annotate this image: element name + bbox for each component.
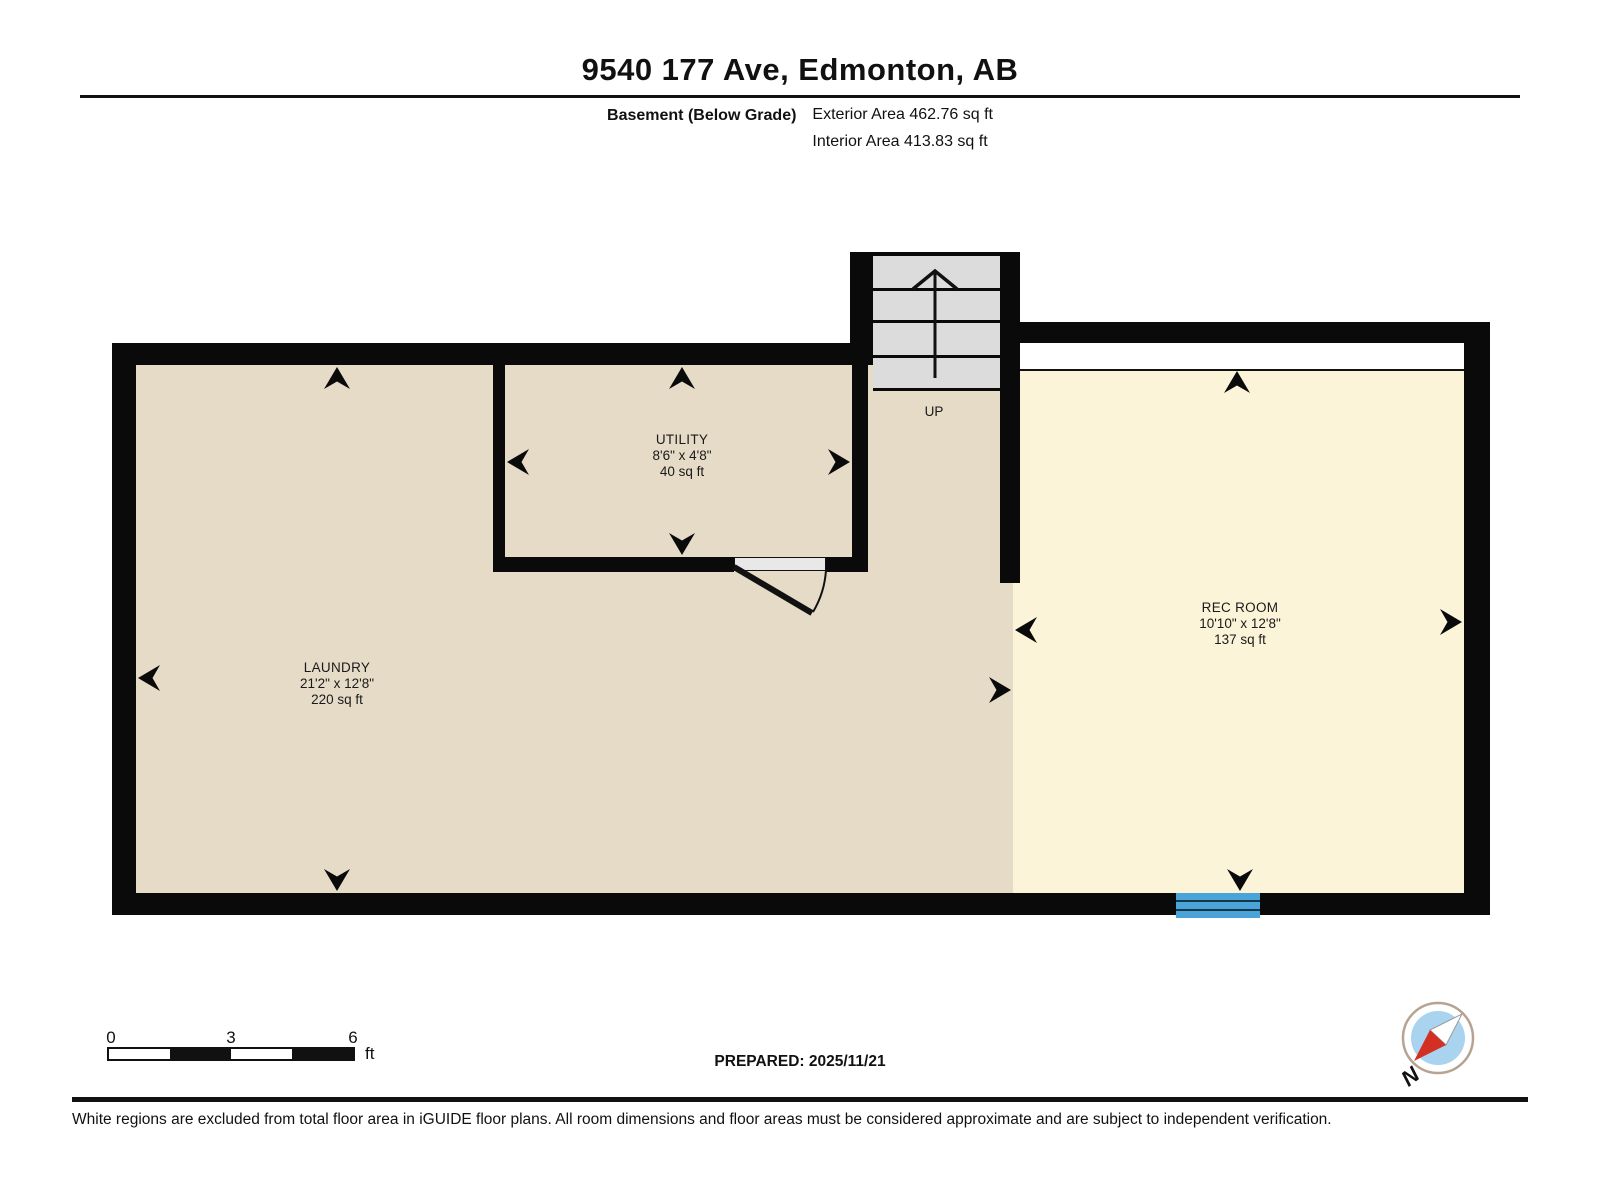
- room-name: LAUNDRY: [300, 660, 374, 676]
- room-area: 40 sq ft: [652, 464, 711, 480]
- area-summary: Exterior Area 462.76 sq ft Interior Area…: [812, 106, 993, 151]
- door-swing-icon: [700, 550, 860, 660]
- wall-top-rec-section: [1002, 322, 1490, 343]
- room-dimensions: 8'6" x 4'8": [652, 448, 711, 464]
- wall-stair-left: [850, 252, 873, 365]
- window-pane-line: [1176, 900, 1260, 902]
- compass-icon: N: [1392, 998, 1502, 1098]
- floor-name: Basement (Below Grade): [607, 106, 796, 125]
- wall-right: [1464, 322, 1490, 915]
- room-name: UTILITY: [652, 432, 711, 448]
- wall-stair-right: [1000, 252, 1020, 583]
- prepared-date: PREPARED: 2025/11/21: [0, 1053, 1600, 1071]
- wall-left: [112, 343, 136, 915]
- wall-bottom: [112, 893, 1490, 915]
- window-icon: [1176, 893, 1260, 918]
- disclaimer-text: White regions are excluded from total fl…: [72, 1111, 1552, 1129]
- scale-tick-labels: 0 3 6: [107, 1028, 355, 1046]
- room-area: 137 sq ft: [1199, 632, 1281, 648]
- room-name: REC ROOM: [1199, 600, 1281, 616]
- page-title: 9540 177 Ave, Edmonton, AB: [0, 52, 1600, 88]
- room-area: 220 sq ft: [300, 692, 374, 708]
- excluded-white-region: [1018, 343, 1466, 371]
- utility-room-label: UTILITY 8'6" x 4'8" 40 sq ft: [652, 432, 711, 480]
- window-pane-line: [1176, 909, 1260, 911]
- interior-area: Interior Area 413.83 sq ft: [812, 133, 993, 151]
- stairs-up-label: UP: [910, 404, 958, 419]
- footer-divider: [72, 1097, 1528, 1102]
- title-divider: [80, 95, 1520, 98]
- laundry-room-label: LAUNDRY 21'2" x 12'8" 220 sq ft: [300, 660, 374, 708]
- wall-utility-right: [852, 365, 868, 572]
- scale-tick: 6: [348, 1028, 357, 1048]
- wall-utility-bottom-left: [493, 557, 734, 572]
- floor-summary: Basement (Below Grade) Exterior Area 462…: [0, 106, 1600, 151]
- wall-utility-left: [493, 365, 505, 572]
- rec-room-label: REC ROOM 10'10" x 12'8" 137 sq ft: [1199, 600, 1281, 648]
- stairs-up-arrow-icon: [873, 254, 1000, 394]
- scale-tick: 0: [106, 1028, 115, 1048]
- laundry-room-area: [124, 355, 1019, 905]
- scale-tick: 3: [226, 1028, 235, 1048]
- room-dimensions: 21'2" x 12'8": [300, 676, 374, 692]
- exterior-area: Exterior Area 462.76 sq ft: [812, 106, 993, 124]
- room-dimensions: 10'10" x 12'8": [1199, 616, 1281, 632]
- wall-top-left-section: [112, 343, 862, 365]
